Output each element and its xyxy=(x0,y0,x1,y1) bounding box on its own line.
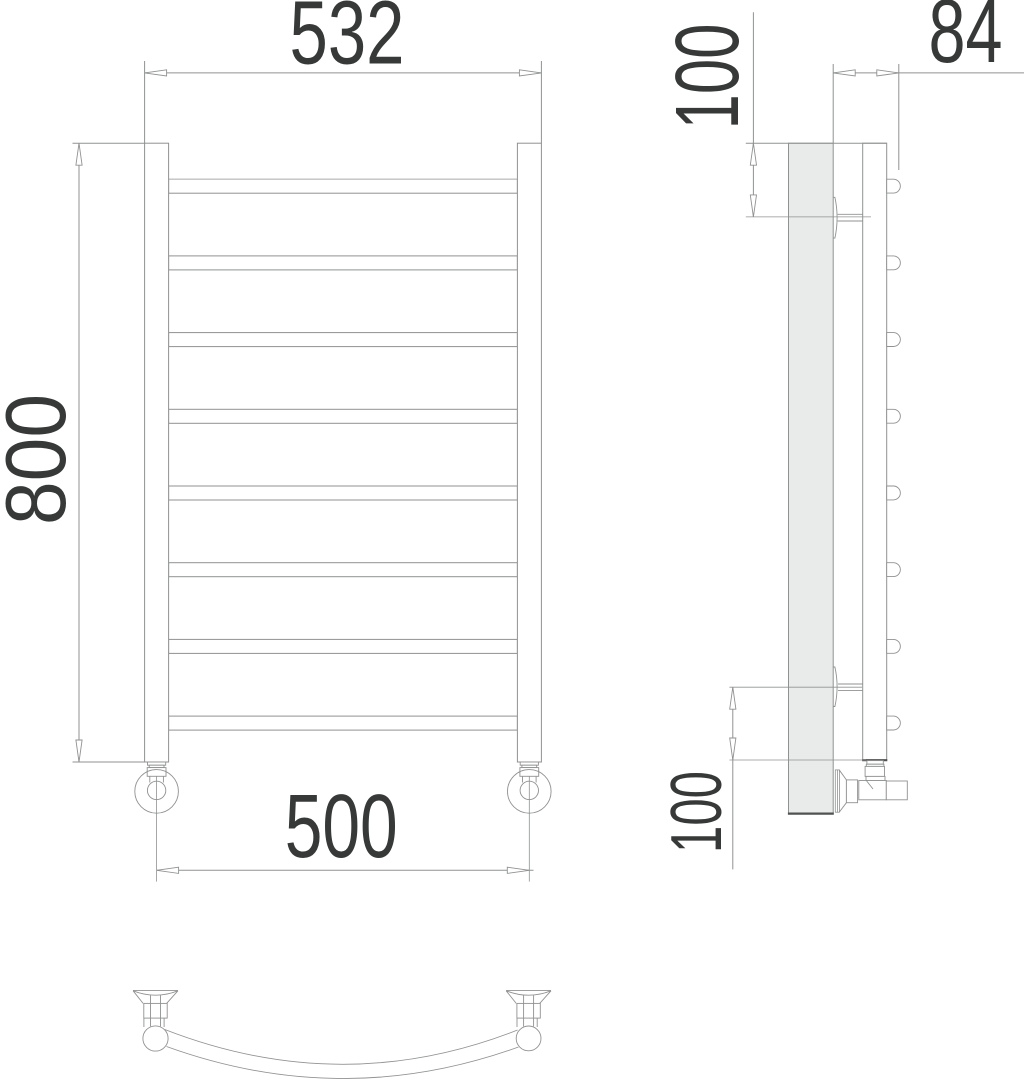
svg-text:100: 100 xyxy=(657,771,737,853)
svg-text:800: 800 xyxy=(0,394,84,525)
svg-text:84: 84 xyxy=(929,0,1003,82)
svg-text:532: 532 xyxy=(290,0,405,84)
svg-text:500: 500 xyxy=(285,777,398,877)
svg-text:100: 100 xyxy=(658,24,758,130)
